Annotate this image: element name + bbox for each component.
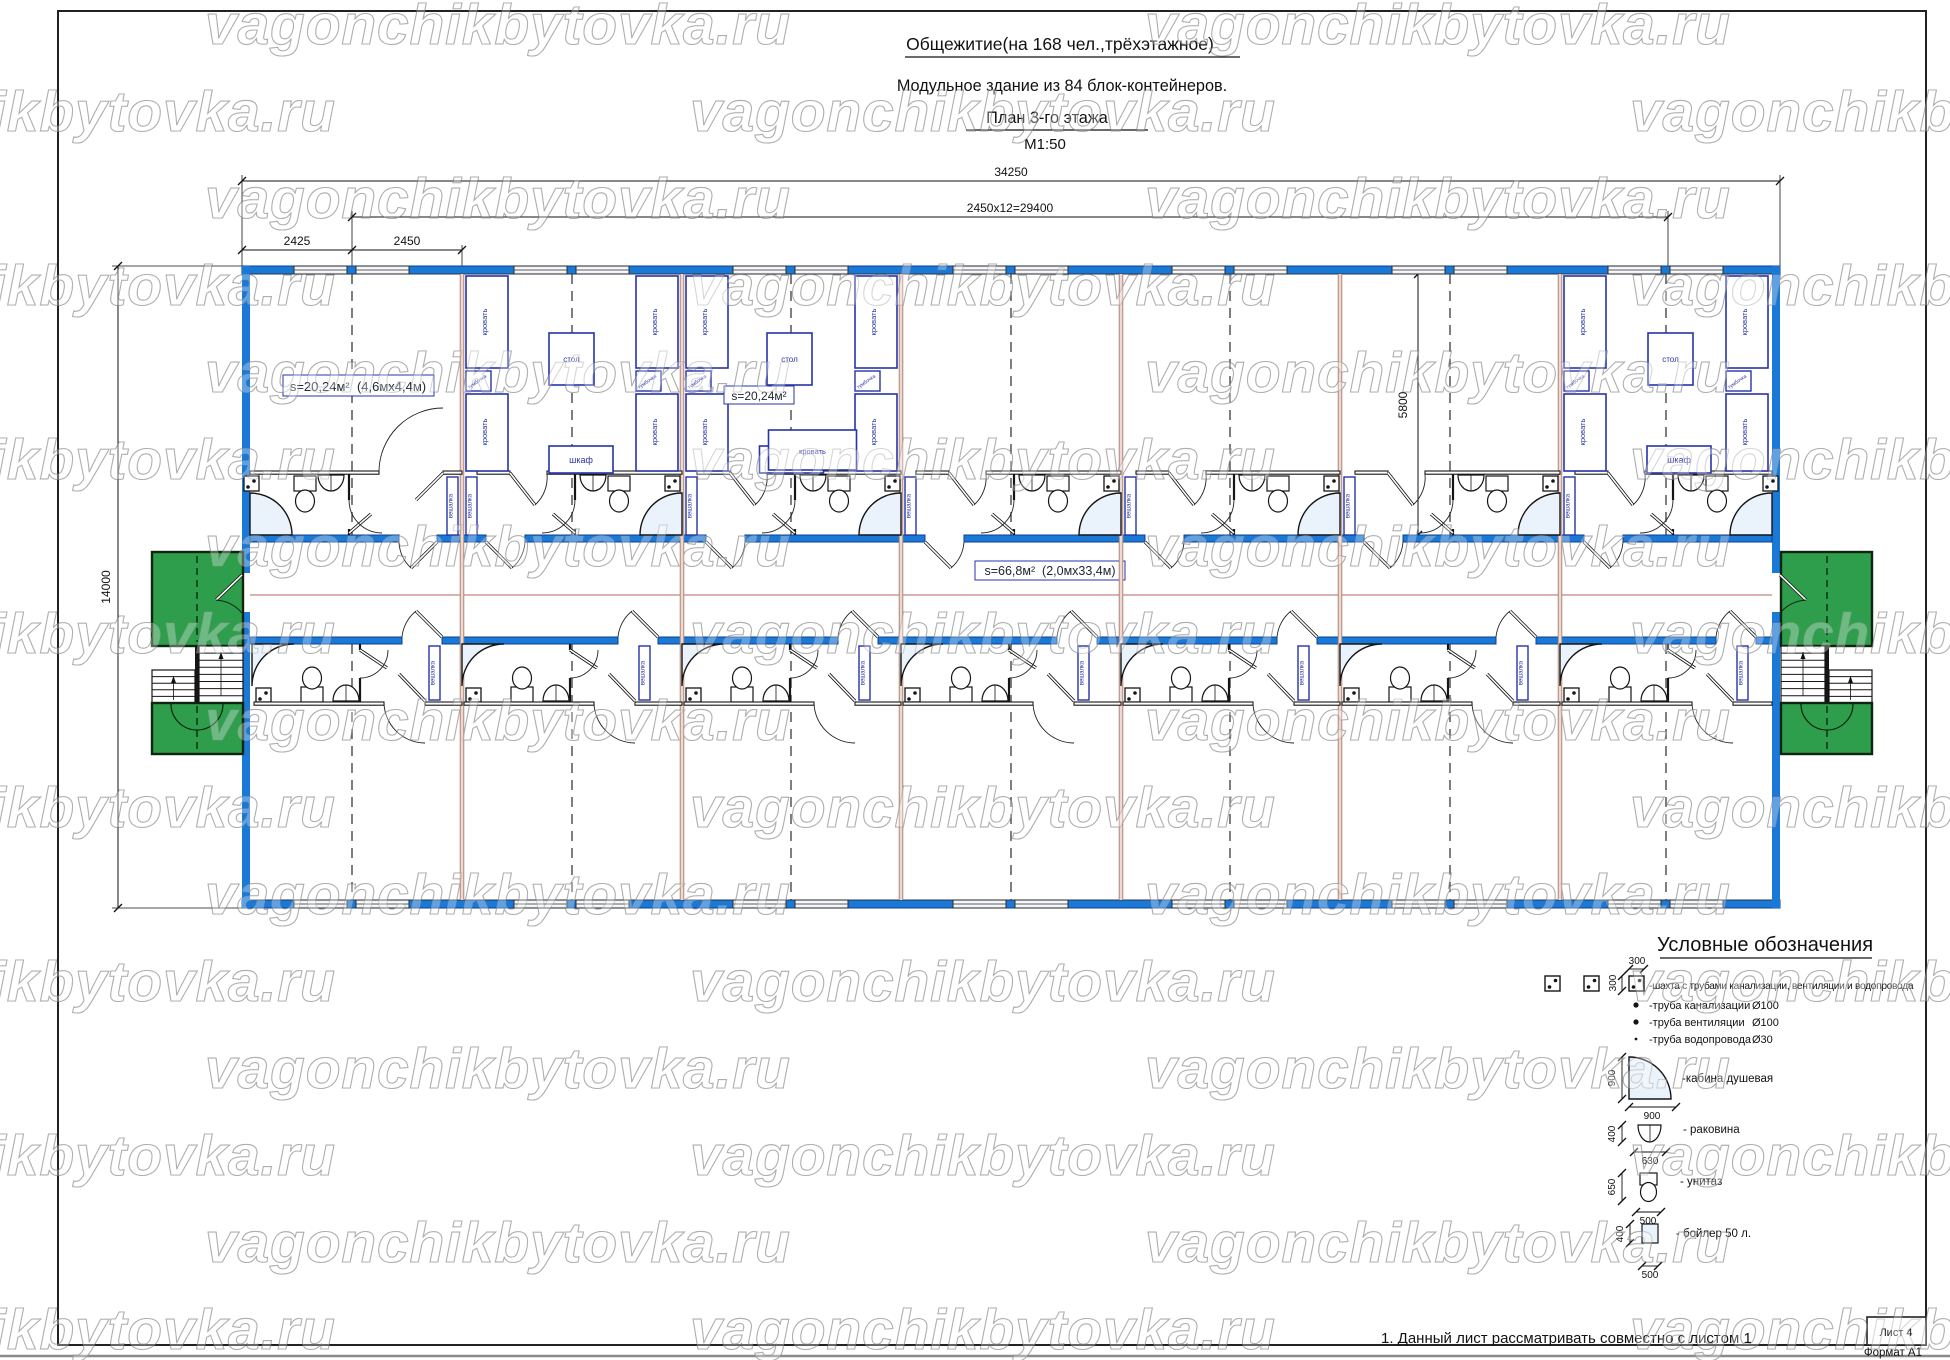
svg-text:вешалка: вешалка bbox=[431, 660, 437, 685]
svg-text:vagonchikbytovka.ru: vagonchikbytovka.ru bbox=[0, 254, 335, 318]
svg-text:vagonchikbytovka.ru: vagonchikbytovka.ru bbox=[0, 80, 335, 144]
svg-text:vagonchikbytovka.ru: vagonchikbytovka.ru bbox=[1145, 341, 1730, 405]
svg-text:вешалка: вешалка bbox=[641, 660, 647, 685]
svg-text:2450х12=29400: 2450х12=29400 bbox=[967, 201, 1054, 215]
svg-text:vagonchikbytovka.ru: vagonchikbytovka.ru bbox=[690, 1124, 1275, 1188]
svg-text:vagonchikbytovka.ru: vagonchikbytovka.ru bbox=[205, 341, 790, 405]
svg-text:vagonchikbytovka.ru: vagonchikbytovka.ru bbox=[1145, 515, 1730, 579]
svg-text:кровать: кровать bbox=[480, 418, 489, 445]
svg-text:vagonchikbytovka.ru: vagonchikbytovka.ru bbox=[1145, 1211, 1730, 1275]
svg-text:300: 300 bbox=[1608, 974, 1619, 991]
svg-text:34250: 34250 bbox=[994, 165, 1028, 179]
svg-text:vagonchikbytovka.ru: vagonchikbytovka.ru bbox=[1630, 602, 1950, 666]
svg-text:vagonchikbytovka.ru: vagonchikbytovka.ru bbox=[0, 602, 335, 666]
svg-text:vagonchikbytovka.ru: vagonchikbytovka.ru bbox=[205, 1211, 790, 1275]
svg-text:-труба вентиляции: -труба вентиляции bbox=[1649, 1017, 1745, 1029]
svg-text:vagonchikbytovka.ru: vagonchikbytovka.ru bbox=[0, 428, 335, 492]
svg-text:vagonchikbytovka.ru: vagonchikbytovka.ru bbox=[1630, 776, 1950, 840]
svg-text:вешалка: вешалка bbox=[907, 493, 913, 518]
svg-text:vagonchikbytovka.ru: vagonchikbytovka.ru bbox=[0, 1298, 335, 1360]
svg-text:вешалка: вешалка bbox=[1519, 660, 1525, 685]
svg-text:vagonchikbytovka.ru: vagonchikbytovka.ru bbox=[205, 167, 790, 231]
svg-text:vagonchikbytovka.ru: vagonchikbytovka.ru bbox=[205, 689, 790, 753]
svg-text:vagonchikbytovka.ru: vagonchikbytovka.ru bbox=[690, 776, 1275, 840]
svg-text:кровать: кровать bbox=[650, 308, 659, 335]
svg-text:vagonchikbytovka.ru: vagonchikbytovka.ru bbox=[690, 602, 1275, 666]
svg-text:14000: 14000 bbox=[99, 570, 113, 604]
svg-text:2450: 2450 bbox=[394, 234, 421, 248]
svg-text:vagonchikbytovka.ru: vagonchikbytovka.ru bbox=[690, 950, 1275, 1014]
svg-text:vagonchikbytovka.ru: vagonchikbytovka.ru bbox=[0, 950, 335, 1014]
svg-text:900: 900 bbox=[1644, 1111, 1661, 1122]
svg-text:vagonchikbytovka.ru: vagonchikbytovka.ru bbox=[1145, 1037, 1730, 1101]
svg-text:вешалка: вешалка bbox=[1300, 660, 1306, 685]
svg-text:шкаф: шкаф bbox=[569, 455, 593, 465]
svg-text:vagonchikbytovka.ru: vagonchikbytovka.ru bbox=[205, 1037, 790, 1101]
svg-text:vagonchikbytovka.ru: vagonchikbytovka.ru bbox=[0, 776, 335, 840]
svg-text:vagonchikbytovka.ru: vagonchikbytovka.ru bbox=[1145, 167, 1730, 231]
svg-text:s=66,8м² (2,0мх33,4м): s=66,8м² (2,0мх33,4м) bbox=[984, 564, 1115, 578]
svg-text:vagonchikbytovka.ru: vagonchikbytovka.ru bbox=[1630, 1124, 1950, 1188]
svg-text:vagonchikbytovka.ru: vagonchikbytovka.ru bbox=[1145, 863, 1730, 927]
svg-text:vagonchikbytovka.ru: vagonchikbytovka.ru bbox=[1630, 254, 1950, 318]
svg-text:кровать: кровать bbox=[1578, 418, 1587, 445]
svg-text:vagonchikbytovka.ru: vagonchikbytovka.ru bbox=[690, 80, 1275, 144]
svg-text:vagonchikbytovka.ru: vagonchikbytovka.ru bbox=[205, 515, 790, 579]
svg-text:vagonchikbytovka.ru: vagonchikbytovka.ru bbox=[0, 1124, 335, 1188]
svg-text:vagonchikbytovka.ru: vagonchikbytovka.ru bbox=[205, 863, 790, 927]
svg-text:vagonchikbytovka.ru: vagonchikbytovka.ru bbox=[1630, 950, 1950, 1014]
svg-text:vagonchikbytovka.ru: vagonchikbytovka.ru bbox=[690, 1298, 1275, 1360]
svg-text:vagonchikbytovka.ru: vagonchikbytovka.ru bbox=[1630, 1298, 1950, 1360]
svg-text:2425: 2425 bbox=[284, 234, 311, 248]
svg-text:Ø100: Ø100 bbox=[1752, 1017, 1779, 1029]
svg-text:vagonchikbytovka.ru: vagonchikbytovka.ru bbox=[690, 254, 1275, 318]
svg-text:vagonchikbytovka.ru: vagonchikbytovka.ru bbox=[1145, 0, 1730, 57]
svg-text:кровать: кровать bbox=[1578, 308, 1587, 335]
svg-text:vagonchikbytovka.ru: vagonchikbytovka.ru bbox=[205, 0, 790, 57]
svg-text:Ø30: Ø30 bbox=[1752, 1034, 1773, 1046]
svg-text:vagonchikbytovka.ru: vagonchikbytovka.ru bbox=[690, 428, 1275, 492]
svg-text:вешалка: вешалка bbox=[1127, 493, 1133, 518]
svg-text:650: 650 bbox=[1607, 1178, 1618, 1195]
svg-text:кровать: кровать bbox=[650, 418, 659, 445]
svg-text:vagonchikbytovka.ru: vagonchikbytovka.ru bbox=[1630, 80, 1950, 144]
svg-text:кровать: кровать bbox=[480, 308, 489, 335]
svg-text:vagonchikbytovka.ru: vagonchikbytovka.ru bbox=[1630, 428, 1950, 492]
svg-text:vagonchikbytovka.ru: vagonchikbytovka.ru bbox=[1145, 689, 1730, 753]
svg-text:400: 400 bbox=[1607, 1125, 1618, 1142]
